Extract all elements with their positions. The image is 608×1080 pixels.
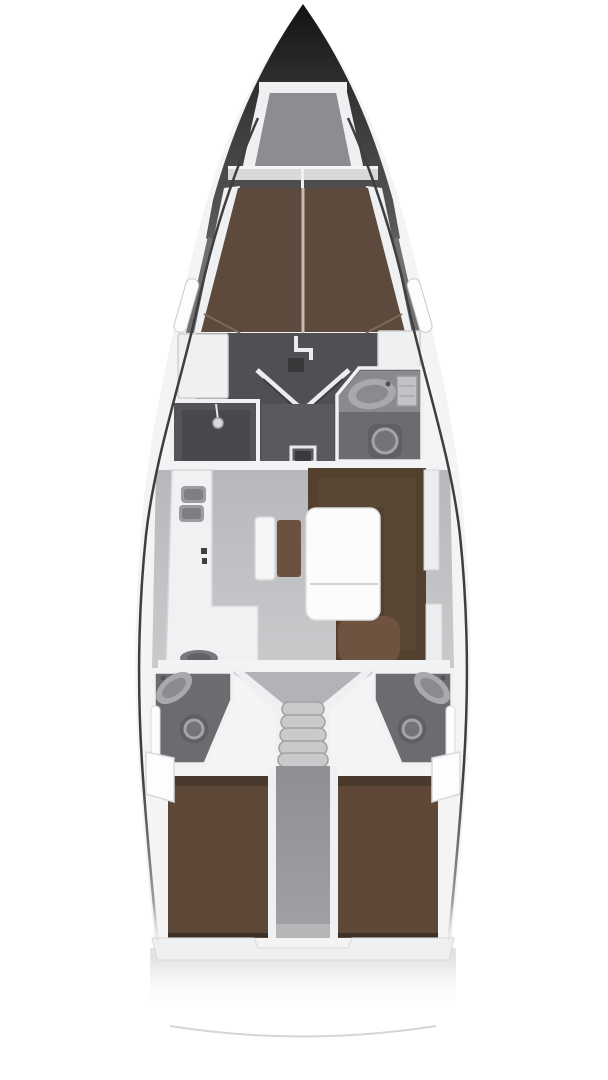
corridor-end (276, 924, 330, 938)
salon-door-opening (295, 451, 311, 462)
anchor-locker-forward-beam (259, 82, 347, 93)
settee-chaise (338, 616, 400, 664)
hull-window (151, 706, 160, 760)
wardrobe-port (178, 334, 228, 398)
galley-sink-bowl (184, 489, 203, 500)
aft-corridor (268, 766, 338, 938)
cockpit-locker-starboard (432, 752, 460, 802)
anchor-locker (242, 82, 364, 170)
sideboard-bench (255, 517, 275, 580)
step (282, 702, 324, 716)
shower-head (213, 418, 223, 428)
forward-head (337, 368, 422, 461)
faucet (161, 676, 166, 681)
shower-room (172, 401, 258, 463)
double-bed-starboard (338, 776, 438, 938)
floor-plan-canvas (0, 0, 608, 1080)
cockpit-locker-port (146, 752, 174, 802)
locker-handle (202, 558, 207, 564)
locker-handle (201, 548, 207, 554)
v-berth-center-seam (302, 188, 305, 334)
aft-cabin-port (146, 752, 268, 940)
toilet-bowl (185, 720, 203, 738)
yacht-floor-plan (0, 0, 608, 1080)
corridor-wall-port (268, 766, 276, 938)
salon-aft-bulkhead (158, 660, 450, 672)
bed-head-shadow (338, 776, 438, 786)
toilet-bowl (373, 429, 397, 453)
corridor-wall-starboard (330, 766, 338, 938)
corridor-floor (276, 766, 330, 924)
bed-foot-edge (338, 933, 438, 937)
double-bed-port (168, 776, 268, 938)
step (278, 753, 328, 767)
floor-hatch (288, 358, 304, 372)
salon-table (306, 508, 380, 620)
aft-cabin-starboard (338, 752, 460, 940)
forward-cabin (194, 166, 412, 352)
galley-sink-bowl (182, 508, 201, 519)
faucet (386, 382, 391, 387)
salon-locker-strip (426, 604, 442, 662)
step (281, 715, 325, 729)
bed-head-shadow (168, 776, 268, 786)
forward-corridor (262, 404, 334, 463)
step (280, 728, 326, 742)
bench-cushion (277, 520, 301, 577)
bed-foot-edge (168, 933, 268, 937)
salon-locker-strip (424, 470, 439, 570)
hull-window (446, 706, 455, 760)
toilet-bowl (403, 720, 421, 738)
faucet (441, 676, 446, 681)
head-cabinet (397, 376, 417, 406)
